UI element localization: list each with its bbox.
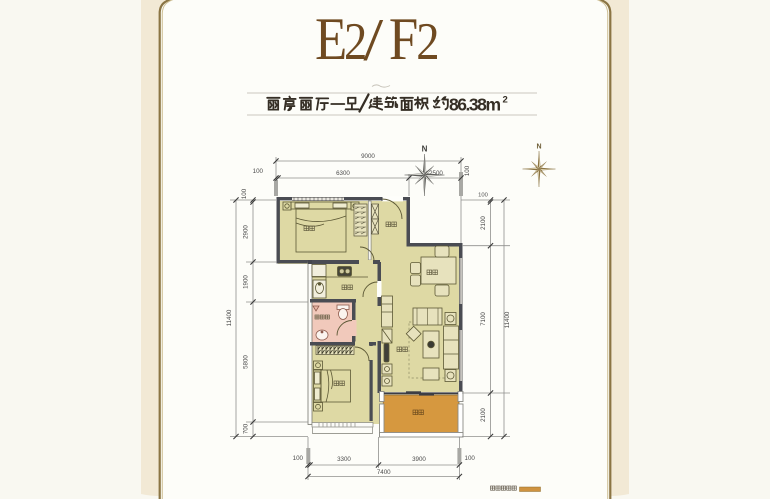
svg-text:100: 100 <box>241 188 248 199</box>
svg-text:E: E <box>315 7 347 73</box>
svg-text:2900: 2900 <box>243 225 250 239</box>
svg-text:86.38m: 86.38m <box>449 95 501 115</box>
svg-text:100: 100 <box>464 165 471 176</box>
svg-text:100: 100 <box>478 193 488 199</box>
svg-text:11400: 11400 <box>226 309 233 326</box>
svg-text:F: F <box>389 7 418 73</box>
svg-text:3900: 3900 <box>412 456 426 463</box>
svg-text:/: / <box>363 7 384 73</box>
svg-text:11400: 11400 <box>504 311 511 328</box>
svg-text:2: 2 <box>503 95 508 106</box>
svg-text:7400: 7400 <box>377 469 391 476</box>
svg-text:2100: 2100 <box>480 408 487 422</box>
svg-text:2100: 2100 <box>480 216 487 230</box>
svg-text:5800: 5800 <box>243 355 250 369</box>
svg-text:2: 2 <box>416 12 439 70</box>
svg-text:100: 100 <box>293 455 304 462</box>
svg-text:7100: 7100 <box>480 312 487 326</box>
svg-text:N: N <box>536 144 541 151</box>
svg-text:6300: 6300 <box>336 170 350 177</box>
svg-text:1900: 1900 <box>243 275 250 289</box>
svg-text:3300: 3300 <box>337 456 351 463</box>
svg-text:100: 100 <box>253 168 264 175</box>
svg-text:100: 100 <box>465 455 476 462</box>
svg-text:700: 700 <box>243 423 250 434</box>
svg-text:9000: 9000 <box>361 153 375 160</box>
svg-text:N: N <box>422 145 428 154</box>
